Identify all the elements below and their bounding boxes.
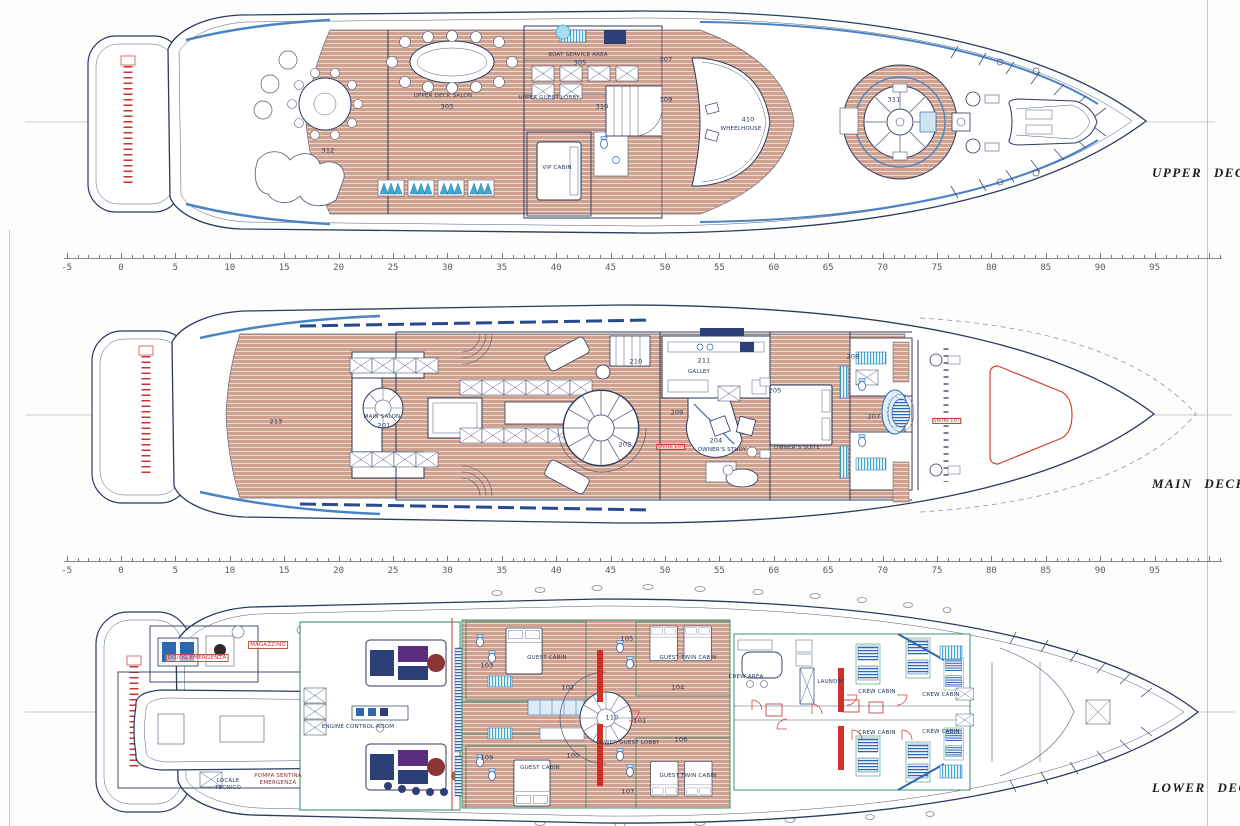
scale-tick	[230, 253, 231, 258]
scale-tick	[186, 255, 187, 258]
scale-number: 55	[714, 566, 725, 576]
room-label-upper: 312	[321, 147, 334, 154]
scale-tick	[741, 558, 742, 561]
scale-number: 35	[496, 263, 507, 273]
scale-tick	[665, 253, 666, 258]
scale-tick	[872, 255, 873, 258]
scale-tick	[687, 255, 688, 258]
scale-number: 80	[986, 263, 997, 273]
scale-tick	[469, 255, 470, 258]
scale-number: 0	[118, 263, 123, 273]
scale-number: 85	[1040, 263, 1051, 273]
scale-tick	[1057, 255, 1058, 258]
scale-number: 95	[1149, 566, 1160, 576]
scale-tick	[295, 558, 296, 561]
room-label-lower: 105	[620, 635, 633, 642]
scale-number: 65	[823, 566, 834, 576]
room-label-upper: VIP CABIN	[542, 165, 571, 171]
scale-tick	[926, 255, 927, 258]
scale-tick	[252, 255, 253, 258]
scale-tick	[99, 558, 100, 561]
scale-tick	[208, 558, 209, 561]
scale-tick	[328, 558, 329, 561]
scale-tick	[273, 255, 274, 258]
room-label-lower: 110	[605, 714, 618, 721]
room-label-lower: TECNICO	[215, 785, 241, 791]
scale-tick	[1046, 556, 1047, 561]
scale-tick	[839, 558, 840, 561]
scale-tick	[1155, 253, 1156, 258]
scale-tick	[828, 556, 829, 561]
scale-tick	[785, 255, 786, 258]
room-label-main: SMOKE EXIT	[656, 444, 685, 450]
room-label-upper: 310	[595, 103, 608, 110]
scale-tick	[665, 556, 666, 561]
scale-tick	[687, 558, 688, 561]
scale-tick	[197, 558, 198, 561]
scale-tick	[654, 558, 655, 561]
scale-number: 5	[173, 263, 178, 273]
scale-tick	[1122, 255, 1123, 258]
scale-tick	[99, 255, 100, 258]
scale-tick	[306, 558, 307, 561]
scale-tick	[1035, 255, 1036, 258]
room-label-lower: 103	[480, 662, 493, 669]
scale-number: 30	[442, 566, 453, 576]
scale-tick	[796, 255, 797, 258]
scale-tick	[1133, 558, 1134, 561]
scale-tick	[491, 558, 492, 561]
scale-number: 85	[1040, 566, 1051, 576]
scale-tick	[1024, 255, 1025, 258]
scale-tick	[121, 556, 122, 561]
scale-tick	[524, 558, 525, 561]
scale-tick	[850, 255, 851, 258]
scale-tick	[132, 558, 133, 561]
scale-tick	[1111, 255, 1112, 258]
room-label-upper: 303	[440, 103, 453, 110]
room-label-lower: 100	[566, 752, 579, 759]
scale-tick	[175, 556, 176, 561]
scale-tick	[676, 255, 677, 258]
scale-tick	[709, 558, 710, 561]
scale-tick	[991, 556, 992, 561]
scale-tick	[1024, 558, 1025, 561]
room-label-lower: GUEST TWIN CABIN	[660, 655, 717, 661]
scale-tick	[426, 558, 427, 561]
scale-tick	[339, 556, 340, 561]
scale-tick	[774, 556, 775, 561]
room-label-main: 207	[867, 413, 880, 420]
scale-tick	[948, 255, 949, 258]
scale-number: 15	[279, 566, 290, 576]
scale-tick	[67, 556, 68, 561]
scale-tick	[545, 558, 546, 561]
scale-tick	[1209, 253, 1210, 258]
scale-number: 25	[388, 566, 399, 576]
scale-tick	[850, 558, 851, 561]
room-label-main: 204	[709, 437, 722, 444]
scale-tick	[817, 558, 818, 561]
scale-number: -5	[61, 566, 72, 576]
scale-tick	[502, 253, 503, 258]
scale-number: 25	[388, 263, 399, 273]
scale-tick	[67, 253, 68, 258]
scale-tick	[404, 558, 405, 561]
scale-tick	[1100, 556, 1101, 561]
scale-tick	[752, 558, 753, 561]
scale-tick	[959, 558, 960, 561]
scale-tick	[937, 556, 938, 561]
scale-tick	[284, 253, 285, 258]
scale-tick	[806, 558, 807, 561]
scale-tick	[371, 558, 372, 561]
scale-tick	[350, 558, 351, 561]
scale-tick	[458, 558, 459, 561]
scale-number: 45	[605, 263, 616, 273]
room-label-main: 208	[846, 353, 859, 360]
scale-number: 20	[333, 566, 344, 576]
scale-tick	[524, 255, 525, 258]
scale-tick	[513, 558, 514, 561]
scale-tick	[480, 255, 481, 258]
scale-tick	[110, 558, 111, 561]
scale-tick	[545, 255, 546, 258]
scale-number: 90	[1095, 263, 1106, 273]
room-label-main: SMOKE EXIT	[932, 418, 961, 424]
scale-tick	[709, 255, 710, 258]
yacht-ga-plan-scan: UPPER DECK MAIN DECK LOWER DECK -5051015…	[0, 0, 1240, 826]
scale-tick	[839, 255, 840, 258]
scale-tick	[904, 255, 905, 258]
scale-tick	[872, 558, 873, 561]
room-label-lower: 109	[480, 754, 493, 761]
scale-tick	[350, 255, 351, 258]
scale-tick	[404, 255, 405, 258]
scale-tick	[1144, 255, 1145, 258]
scale-tick	[132, 255, 133, 258]
room-label-lower: 101	[633, 717, 646, 724]
scale-tick	[88, 255, 89, 258]
room-label-lower: CREW CABIN	[922, 692, 959, 698]
scale-tick	[447, 253, 448, 258]
scale-tick	[948, 558, 949, 561]
scale-tick	[230, 556, 231, 561]
scale-tick	[676, 558, 677, 561]
scale-tick	[1035, 558, 1036, 561]
scale-tick	[219, 255, 220, 258]
scale-tick	[426, 255, 427, 258]
room-label-main: 213	[269, 418, 282, 425]
scale-tick	[894, 255, 895, 258]
room-label-upper: 309	[659, 96, 672, 103]
scale-tick	[785, 558, 786, 561]
scale-tick	[78, 558, 79, 561]
room-label-lower: LOWER GUEST LOBBY	[596, 740, 659, 746]
scale-tick	[752, 255, 753, 258]
room-label-lower: MAGAZZINO	[248, 641, 288, 649]
scale-tick	[382, 255, 383, 258]
scale-tick	[741, 255, 742, 258]
scale-tick	[175, 253, 176, 258]
scale-tick	[926, 558, 927, 561]
scale-tick	[1046, 253, 1047, 258]
scale-tick	[165, 255, 166, 258]
scale-tick	[904, 558, 905, 561]
scale-tick	[437, 558, 438, 561]
room-label-upper: 305	[573, 59, 586, 66]
room-label-lower: ENGINE CONTROL ROOM	[322, 724, 394, 730]
scale-tick	[894, 558, 895, 561]
scale-tick	[1089, 255, 1090, 258]
scale-tick	[437, 255, 438, 258]
room-label-lower: 107	[621, 788, 634, 795]
scale-tick	[502, 556, 503, 561]
scale-tick	[1002, 255, 1003, 258]
scale-tick	[719, 253, 720, 258]
scale-tick	[937, 253, 938, 258]
scale-tick	[600, 255, 601, 258]
room-label-lower: LAUNDRY	[817, 679, 845, 685]
scale-number: 40	[551, 566, 562, 576]
page-edge-right	[1207, 0, 1208, 826]
scale-tick	[393, 253, 394, 258]
room-label-main: 211	[697, 357, 710, 364]
scale-tick	[143, 558, 144, 561]
scale-tick	[1220, 255, 1221, 258]
scale-tick	[632, 255, 633, 258]
scale-tick	[415, 558, 416, 561]
scale-tick	[774, 253, 775, 258]
scale-tick	[143, 255, 144, 258]
scale-tick	[622, 558, 623, 561]
room-label-lower: GUEST CABIN	[527, 655, 567, 661]
scale-tick	[1198, 558, 1199, 561]
scale-number: 35	[496, 566, 507, 576]
scale-tick	[1057, 558, 1058, 561]
room-label-upper: BOAT SERVICE AREA	[548, 52, 608, 58]
scale-tick	[567, 558, 568, 561]
scale-tick	[219, 558, 220, 561]
scale-tick	[1209, 556, 1210, 561]
scale-tick	[719, 556, 720, 561]
scale-tick	[632, 558, 633, 561]
room-label-main: 205	[768, 387, 781, 394]
scale-number: 70	[877, 566, 888, 576]
scale-tick	[1089, 558, 1090, 561]
scale-tick	[1078, 255, 1079, 258]
scale-tick	[534, 255, 535, 258]
scale-tick	[317, 255, 318, 258]
room-label-main: OWNER'S STUDY	[698, 447, 747, 453]
scale-tick	[981, 558, 982, 561]
scale-number: 10	[224, 263, 235, 273]
room-label-main: 209	[670, 409, 683, 416]
scale-tick	[1013, 558, 1014, 561]
room-label-lower: EMERGENZA	[260, 780, 297, 786]
room-label-lower: CREW AREA	[729, 674, 764, 680]
scale-tick	[970, 255, 971, 258]
scale-tick	[1187, 255, 1188, 258]
scale-tick	[1220, 558, 1221, 561]
scale-tick	[241, 255, 242, 258]
scale-tick	[991, 253, 992, 258]
scale-number: 30	[442, 263, 453, 273]
scale-ruler-line	[64, 258, 1222, 259]
scale-tick	[415, 255, 416, 258]
scale-number: 10	[224, 566, 235, 576]
scale-number: 75	[932, 263, 943, 273]
scale-number: 75	[932, 566, 943, 576]
scale-tick	[1068, 255, 1069, 258]
room-label-main: OWNER'S SUITE	[774, 445, 821, 451]
scale-tick	[806, 255, 807, 258]
scale-tick	[284, 556, 285, 561]
scale-number: 5	[173, 566, 178, 576]
scale-tick	[252, 558, 253, 561]
scale-tick	[154, 558, 155, 561]
scale-number: 0	[118, 566, 123, 576]
scale-tick	[480, 558, 481, 561]
scale-tick	[458, 255, 459, 258]
upper-deck-label: UPPER DECK	[1152, 165, 1240, 181]
scale-tick	[763, 558, 764, 561]
scale-tick	[883, 253, 884, 258]
scale-tick	[861, 255, 862, 258]
room-label-upper: 307	[659, 56, 672, 63]
room-label-lower: GUEST TWIN CABIN	[660, 773, 717, 779]
scale-tick	[817, 255, 818, 258]
room-label-lower: CREW CABIN	[858, 689, 895, 695]
scale-tick	[1122, 558, 1123, 561]
scale-tick	[654, 255, 655, 258]
page-edge-left	[9, 230, 10, 826]
scale-tick	[447, 556, 448, 561]
scale-number: 55	[714, 263, 725, 273]
scale-tick	[88, 558, 89, 561]
room-label-lower: CREW CABIN	[858, 730, 895, 736]
scale-tick	[1187, 558, 1188, 561]
scale-tick	[589, 558, 590, 561]
scale-tick	[513, 255, 514, 258]
scale-tick	[295, 255, 296, 258]
scale-number: 40	[551, 263, 562, 273]
scale-tick	[556, 556, 557, 561]
room-label-lower: 102	[561, 684, 574, 691]
scale-tick	[208, 255, 209, 258]
scale-number: 70	[877, 263, 888, 273]
main-deck-plan	[25, 305, 1232, 523]
scale-tick	[611, 556, 612, 561]
room-label-upper: 410	[741, 116, 754, 123]
scale-tick	[611, 253, 612, 258]
upper-deck-plan	[25, 11, 1215, 233]
scale-tick	[578, 558, 579, 561]
scale-tick	[273, 558, 274, 561]
room-label-lower: DO/OG EMERGENZA	[166, 654, 229, 662]
scale-tick	[796, 558, 797, 561]
scale-number: 95	[1149, 263, 1160, 273]
scale-tick	[730, 558, 731, 561]
scale-tick	[339, 253, 340, 258]
scale-tick	[622, 255, 623, 258]
main-deck-label: MAIN DECK	[1152, 476, 1240, 492]
scale-tick	[1155, 556, 1156, 561]
scale-number: 60	[768, 566, 779, 576]
scale-ruler-line	[64, 561, 1222, 562]
scale-tick	[262, 255, 263, 258]
scale-tick	[1133, 255, 1134, 258]
room-label-upper: WHEELHOUSE	[720, 126, 761, 132]
scale-tick	[556, 253, 557, 258]
scale-tick	[121, 253, 122, 258]
room-label-lower: CREW CABIN	[922, 729, 959, 735]
scale-tick	[915, 255, 916, 258]
scale-tick	[981, 255, 982, 258]
room-label-main: 210	[629, 358, 642, 365]
scale-number: 50	[660, 263, 671, 273]
scale-tick	[883, 556, 884, 561]
scale-tick	[1176, 255, 1177, 258]
scale-tick	[643, 255, 644, 258]
ga-plan-drawing	[0, 0, 1240, 826]
scale-tick	[1002, 558, 1003, 561]
scale-tick	[1013, 255, 1014, 258]
room-label-lower: 104	[671, 684, 684, 691]
scale-number: 90	[1095, 566, 1106, 576]
scale-number: 50	[660, 566, 671, 576]
scale-tick	[1166, 255, 1167, 258]
scale-tick	[698, 558, 699, 561]
scale-tick	[915, 558, 916, 561]
scale-tick	[763, 255, 764, 258]
scale-tick	[306, 255, 307, 258]
scale-tick	[970, 558, 971, 561]
room-label-main: GALLEY	[688, 369, 710, 375]
scale-number: 80	[986, 566, 997, 576]
room-label-main: 202	[618, 441, 631, 448]
scale-tick	[1198, 255, 1199, 258]
scale-tick	[469, 558, 470, 561]
room-label-upper: UPPER GUEST LOBBY	[518, 95, 579, 101]
room-label-lower: LOCALE	[217, 778, 240, 784]
scale-tick	[828, 253, 829, 258]
scale-tick	[1144, 558, 1145, 561]
room-label-main: MAIN SALON	[364, 414, 401, 420]
scale-tick	[1068, 558, 1069, 561]
scale-tick	[643, 558, 644, 561]
scale-tick	[861, 558, 862, 561]
scale-tick	[154, 255, 155, 258]
scale-tick	[360, 255, 361, 258]
scale-tick	[567, 255, 568, 258]
scale-tick	[165, 558, 166, 561]
scale-tick	[1100, 253, 1101, 258]
scale-tick	[589, 255, 590, 258]
scale-tick	[1111, 558, 1112, 561]
scale-tick	[197, 255, 198, 258]
scale-tick	[959, 255, 960, 258]
scale-number: 45	[605, 566, 616, 576]
scale-tick	[186, 558, 187, 561]
scale-tick	[698, 255, 699, 258]
scale-tick	[1166, 558, 1167, 561]
scale-tick	[600, 558, 601, 561]
scale-tick	[241, 558, 242, 561]
scale-tick	[317, 558, 318, 561]
room-label-lower: GUEST CABIN	[520, 765, 560, 771]
room-label-main: 201	[377, 422, 390, 429]
